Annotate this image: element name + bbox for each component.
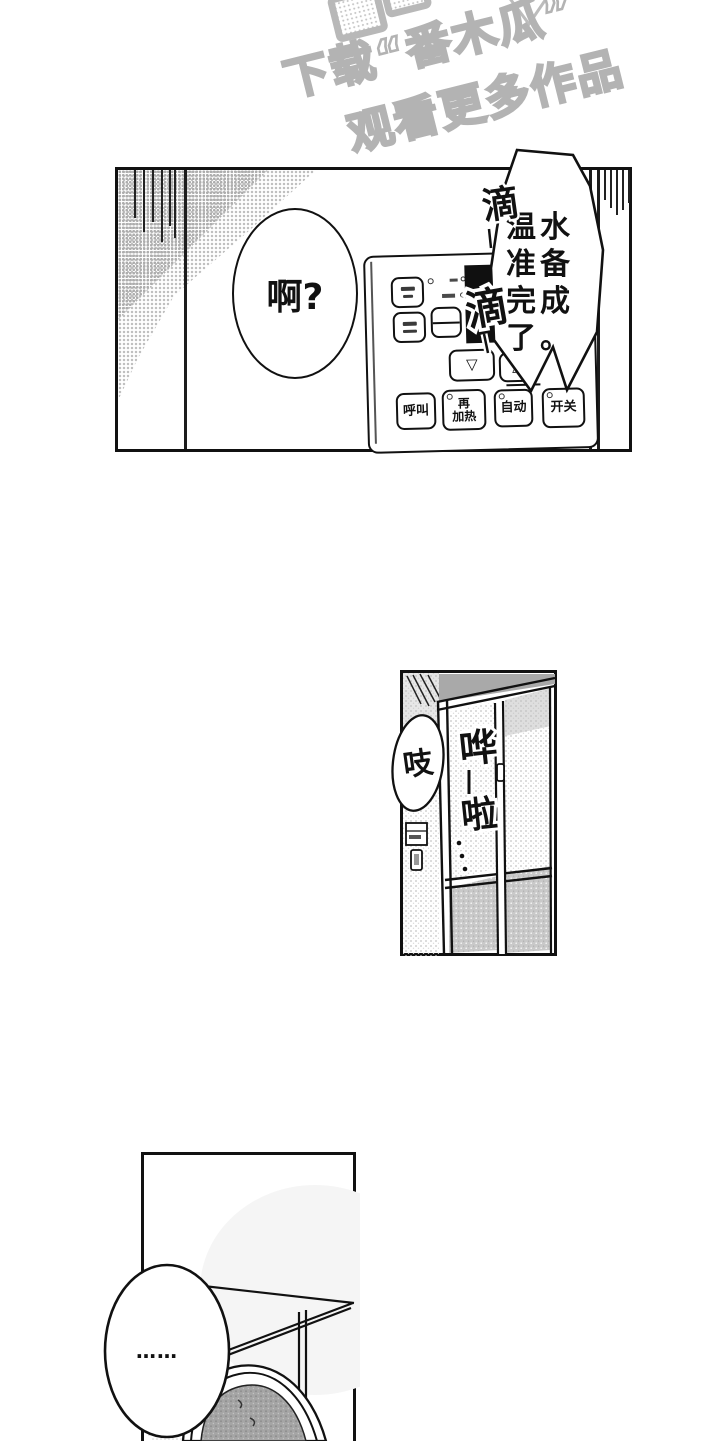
hatch-line (152, 170, 154, 222)
call-button-label: 呼叫 (403, 404, 429, 418)
micro-label (403, 294, 413, 298)
button-dot (447, 394, 453, 400)
device-small-button-2 (392, 311, 426, 343)
manga-page: 下载“番木瓜” 观看更多作品 啊? (0, 0, 720, 1441)
machine-speech-line-2: 准备 (506, 247, 574, 282)
micro-label (442, 294, 455, 298)
micro-label (402, 322, 416, 326)
hatch-line (169, 170, 171, 226)
hatch-line (134, 170, 136, 218)
micro-label (400, 287, 414, 291)
sfx-drip-mid: 滴 (462, 281, 512, 337)
sfx-slide-char1: 哗 (457, 724, 499, 772)
panel-2-content: 吱 哗 啦 (385, 660, 575, 960)
hatch-line (143, 170, 145, 232)
sfx-drip-top-dash (489, 229, 491, 248)
speech-text: 啊? (267, 268, 324, 320)
speech-bubble: 啊? (232, 208, 358, 379)
hatch-line (174, 170, 176, 238)
panel-3-content: …… (100, 1150, 360, 1441)
wall-box-buttons (409, 835, 421, 839)
sfx-slide-char2: 啦 (459, 793, 499, 838)
device-small-button-1 (391, 276, 425, 308)
call-button: 呼叫 (396, 392, 437, 430)
device-edge-line (370, 262, 376, 444)
silent-speech-text: …… (136, 1339, 178, 1363)
wall-corner-line (184, 170, 187, 449)
indicator-dot (428, 278, 434, 284)
sfx-drip-top: 滴 (479, 181, 522, 229)
hatch-line (161, 170, 163, 242)
machine-speech-line-4: 了。 (506, 321, 574, 356)
wall-switch-toggle (414, 854, 419, 865)
sfx-creak-text: 吱 (401, 745, 437, 784)
panel-1-overlay: 温水 准备 完成 了。 滴 滴 (455, 140, 645, 460)
wall-control-box (406, 823, 427, 845)
machine-speech-line-3: 完成 (506, 284, 574, 319)
micro-label (402, 329, 416, 333)
